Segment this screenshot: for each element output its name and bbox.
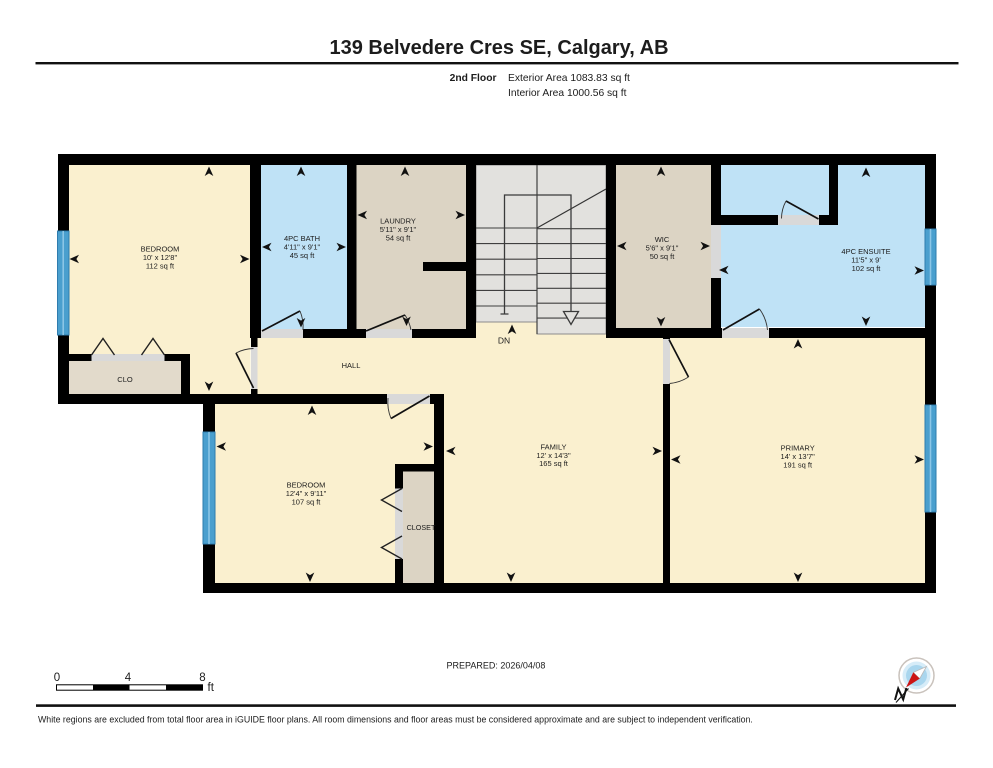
svg-text:4: 4 [125, 672, 132, 684]
svg-text:8: 8 [199, 672, 205, 684]
svg-text:CLOSET: CLOSET [407, 523, 436, 532]
svg-text:HALL: HALL [342, 361, 361, 370]
svg-text:102 sq ft: 102 sq ft [852, 264, 882, 273]
svg-text:White regions are excluded fro: White regions are excluded from total fl… [38, 715, 753, 725]
svg-text:50 sq ft: 50 sq ft [650, 252, 676, 261]
svg-text:PREPARED: 2026/04/08: PREPARED: 2026/04/08 [447, 661, 546, 671]
svg-text:107 sq ft: 107 sq ft [292, 497, 322, 506]
svg-text:2nd Floor: 2nd Floor [450, 73, 497, 84]
svg-text:139 Belvedere Cres SE, Calgary: 139 Belvedere Cres SE, Calgary, AB [329, 37, 668, 59]
svg-text:54 sq ft: 54 sq ft [386, 233, 412, 242]
svg-text:Interior Area 1000.56 sq ft: Interior Area 1000.56 sq ft [508, 88, 627, 99]
svg-text:ft: ft [208, 682, 215, 694]
svg-text:0: 0 [54, 672, 60, 684]
svg-text:165 sq ft: 165 sq ft [539, 459, 569, 468]
svg-text:112 sq ft: 112 sq ft [146, 261, 175, 270]
svg-text:Exterior Area 1083.83 sq ft: Exterior Area 1083.83 sq ft [508, 73, 630, 84]
svg-text:CLO: CLO [117, 375, 133, 384]
svg-text:191 sq ft: 191 sq ft [783, 460, 813, 469]
svg-text:DN: DN [498, 336, 510, 346]
svg-text:45 sq ft: 45 sq ft [290, 251, 316, 260]
